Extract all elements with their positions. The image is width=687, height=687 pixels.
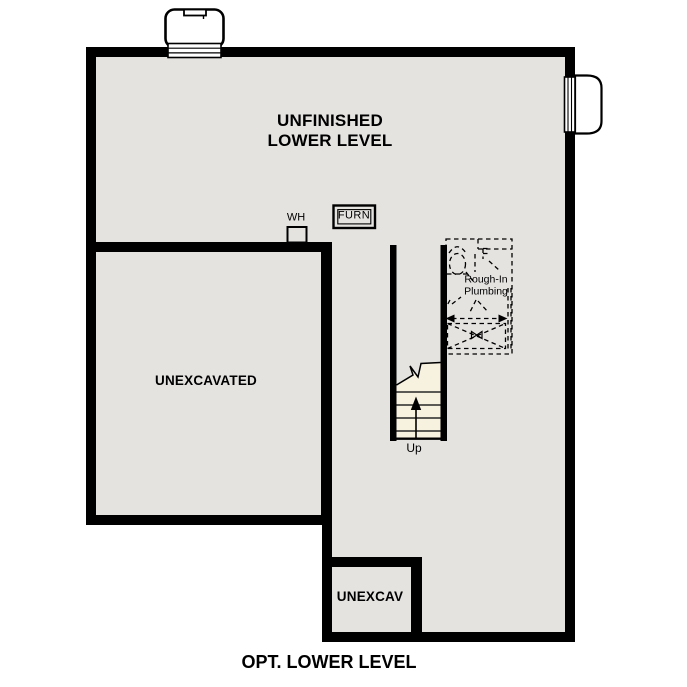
unexcavated-right-wall — [321, 242, 332, 525]
unexcav-right-wall — [411, 557, 422, 642]
unexcavated-bottom-wall — [86, 515, 332, 525]
room-label-unfinished-line1: UNFINISHED — [268, 111, 393, 131]
lower-left-wall — [322, 515, 332, 642]
right-wall-upper — [565, 47, 575, 77]
rough-in-plumbing-label: Rough-In Plumbing — [464, 275, 508, 298]
stair-up-label: Up — [406, 441, 421, 455]
left-wall — [86, 47, 96, 525]
bottom-wall — [322, 632, 575, 642]
room-label-unexcavated: UNEXCAVATED — [155, 373, 257, 389]
window-well-steps — [168, 44, 221, 58]
stair-wall-left — [390, 245, 397, 441]
water-heater-box — [288, 227, 307, 243]
water-heater-label: WH — [287, 211, 305, 224]
room-label-unfinished: UNFINISHED LOWER LEVEL — [268, 111, 393, 151]
top-wall — [86, 47, 575, 57]
floorplan-page: UNFINISHED LOWER LEVEL UNEXCAVATED UNEXC… — [0, 0, 687, 687]
window-bay — [575, 76, 602, 134]
window-right — [565, 76, 602, 134]
room-label-unexcav: UNEXCAV — [337, 589, 403, 605]
window-well-top — [166, 10, 224, 58]
rough-in-plumbing-label-line2: Plumbing — [464, 286, 508, 298]
furnace-label: FURN — [338, 209, 370, 222]
rough-in-plumbing-label-line1: Rough-In — [464, 275, 508, 287]
room-label-unfinished-line2: LOWER LEVEL — [268, 131, 393, 151]
unexcav-top-wall — [322, 557, 422, 567]
right-wall-lower — [565, 132, 575, 642]
plan-title: OPT. LOWER LEVEL — [241, 652, 416, 674]
window-sill — [565, 77, 576, 132]
window-well-notch — [184, 10, 206, 16]
floorplan-drawing — [0, 0, 687, 687]
